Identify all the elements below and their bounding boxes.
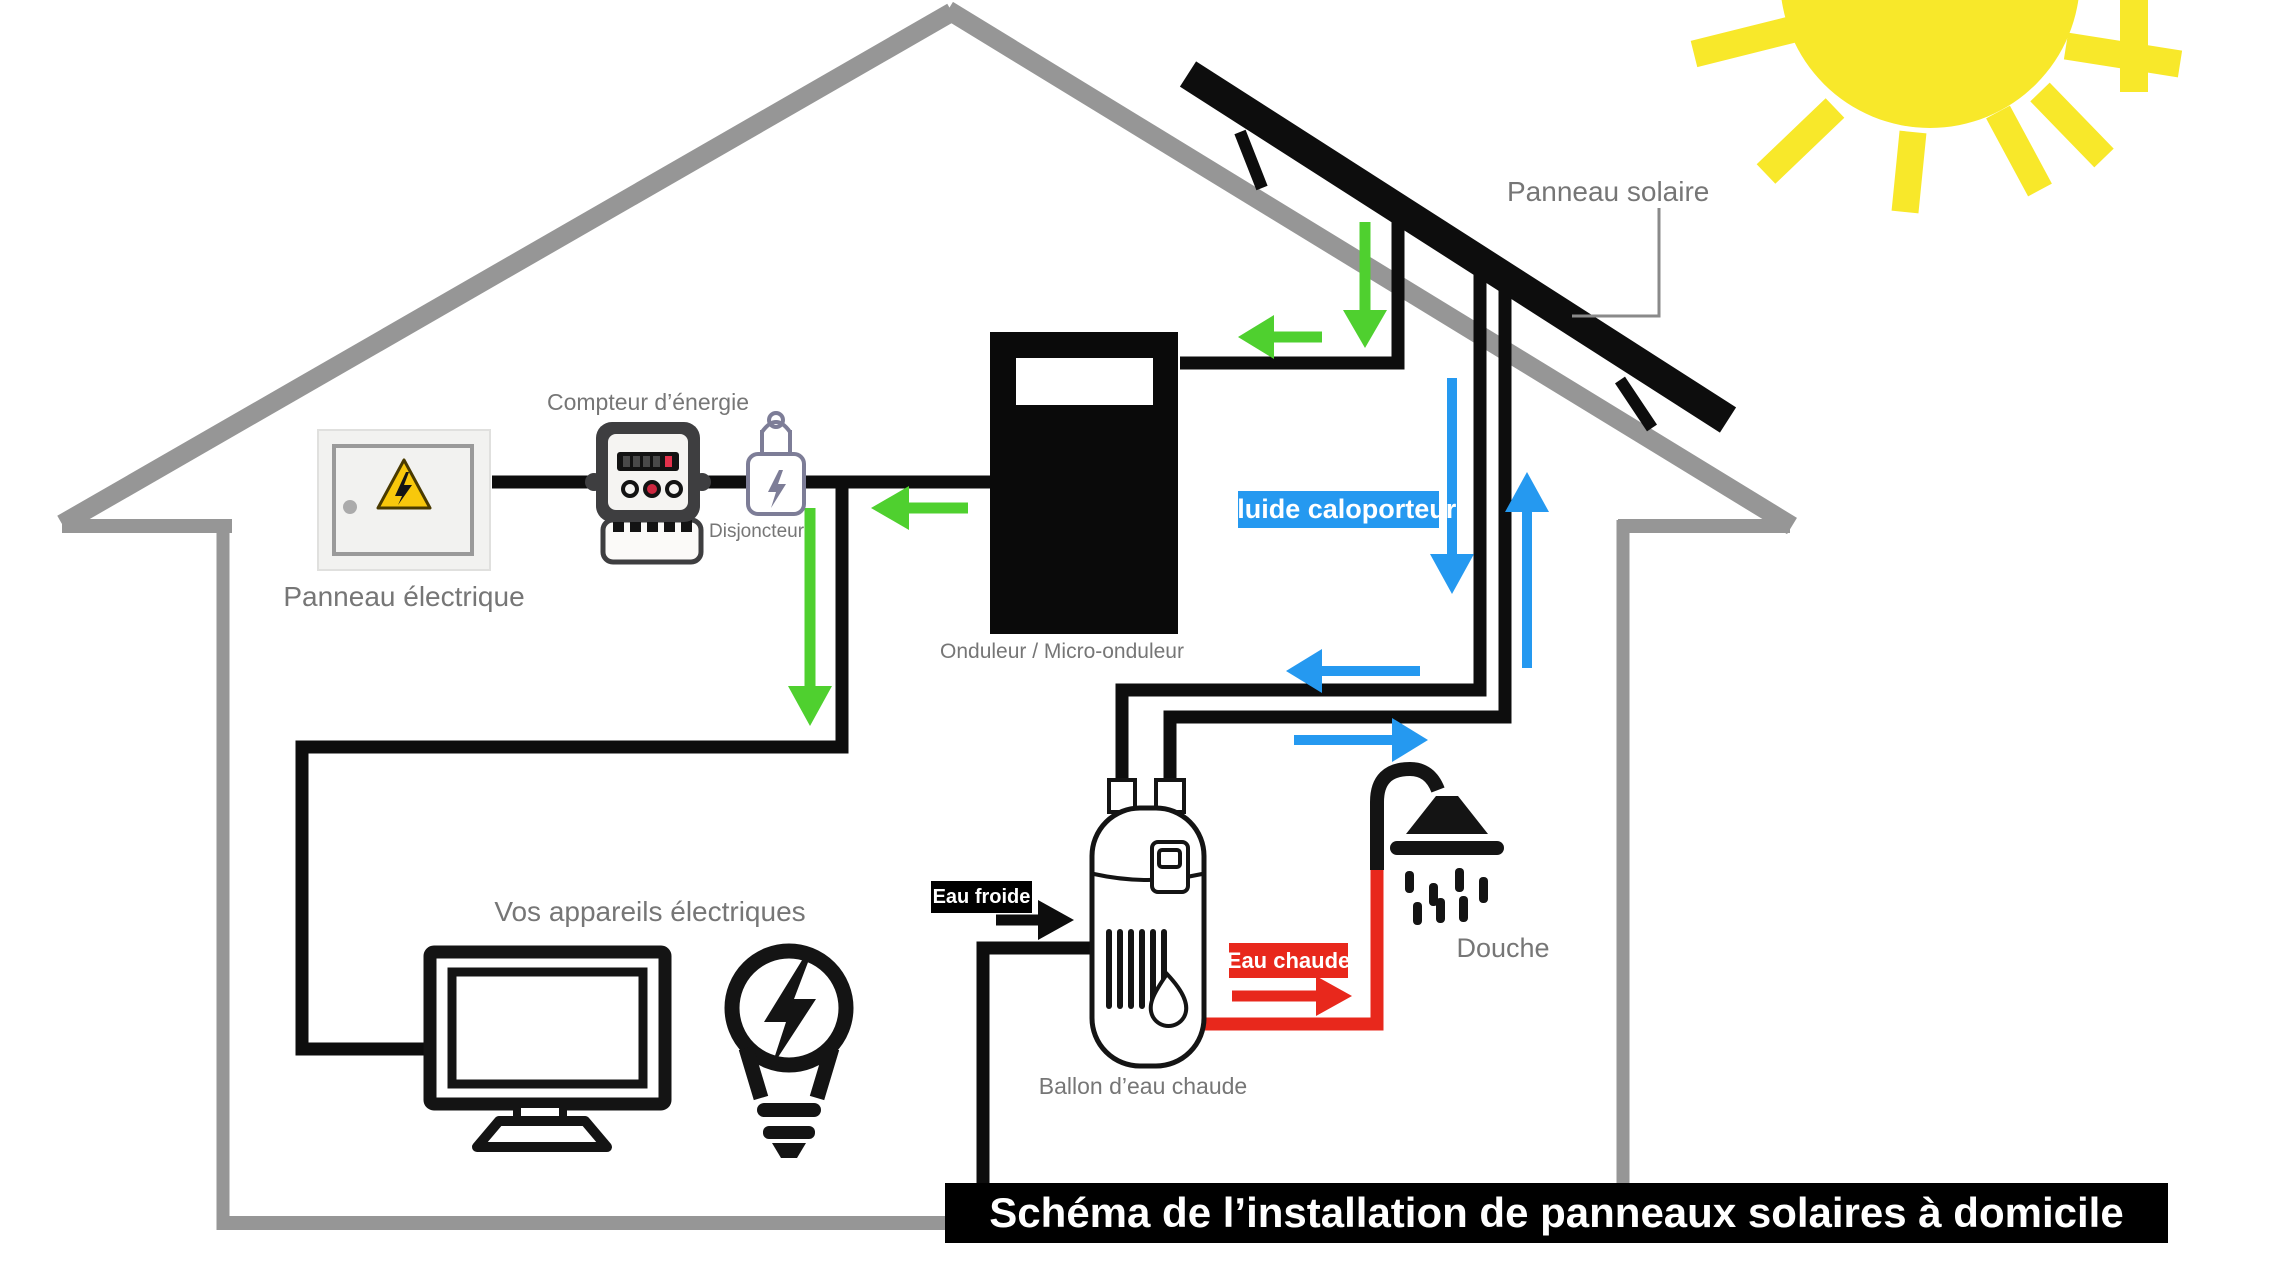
- hot-water-badge: Eau chaude: [1229, 943, 1348, 978]
- heat-transfer-fluid-badge: Fluide caloporteur: [1238, 491, 1439, 528]
- solar-panel-icon: [1188, 74, 1728, 428]
- solar-installation-diagram: Panneau solaire Compteur d’énergie Disjo…: [0, 0, 2278, 1276]
- water-heater-label: Ballon d’eau chaude: [1039, 1073, 1247, 1100]
- circuit-breaker-label: Disjoncteur: [709, 521, 804, 543]
- energy-meter-icon: [585, 422, 711, 562]
- circuit-breaker-icon: [748, 413, 804, 514]
- wiring: [302, 198, 1398, 1049]
- energy-meter-label: Compteur d’énergie: [547, 389, 749, 416]
- monitor-icon: [430, 952, 665, 1147]
- appliances-label: Vos appareils électriques: [494, 896, 805, 928]
- cold-water-badge: Eau froide: [931, 881, 1032, 913]
- shower-icon: [1377, 769, 1504, 925]
- label-pointer-line: [1572, 208, 1659, 316]
- electrical-panel-icon: [318, 430, 490, 570]
- sun-icon: [1694, 0, 2180, 212]
- solar-panel-label: Panneau solaire: [1507, 176, 1709, 208]
- electrical-panel-label: Panneau électrique: [283, 581, 524, 613]
- inverter-label: Onduleur / Micro-onduleur: [940, 640, 1184, 664]
- shower-label: Douche: [1456, 933, 1549, 964]
- lightbulb-icon: [732, 951, 846, 1158]
- cold-water-pipe: [983, 900, 1090, 1186]
- inverter-icon: [990, 332, 1178, 634]
- diagram-title: Schéma de l’installation de panneaux sol…: [945, 1183, 2168, 1243]
- water-heater-icon: [1092, 780, 1204, 1066]
